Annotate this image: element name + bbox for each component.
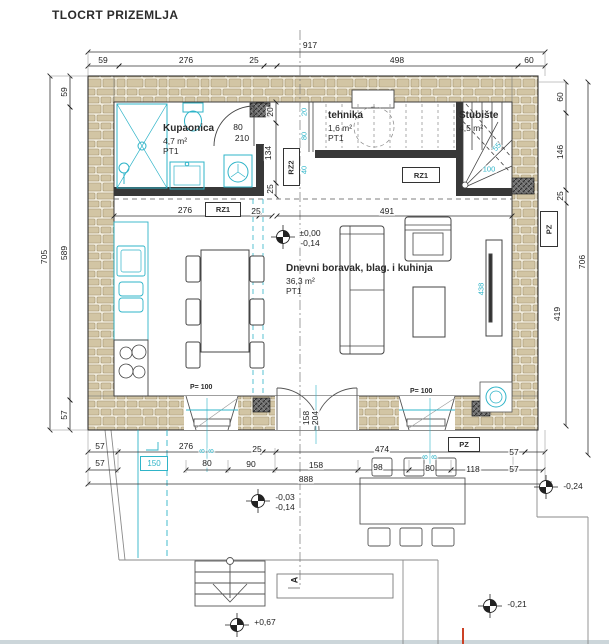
dimension-label: 474 bbox=[374, 445, 390, 454]
dimension-label: 8 bbox=[198, 448, 206, 454]
room-label-bathroom: Kupaonica 4,7 m² PT1 bbox=[163, 123, 214, 157]
room-floor: PT1 bbox=[286, 286, 433, 297]
dimension-label: 8 bbox=[430, 454, 438, 460]
dimension-label: 55 bbox=[491, 141, 503, 154]
elevation-label: +0,67 bbox=[253, 618, 277, 627]
annotation-layer: TLOCRT PRIZEMLJA Kupaonica 4,7 m² PT1 te… bbox=[0, 0, 609, 644]
dimension-label: 98 bbox=[372, 463, 383, 472]
dimension-label: 40 bbox=[300, 165, 308, 175]
dimension-label: 80 bbox=[424, 464, 435, 473]
dimension-label: 589 bbox=[60, 245, 69, 261]
dimension-label: 917 bbox=[302, 41, 318, 50]
room-area: 4,7 m² bbox=[163, 136, 214, 147]
beam-tag-rz2: RZ2 bbox=[283, 148, 300, 186]
dimension-label: 80 bbox=[201, 459, 212, 468]
dimension-label: 491 bbox=[379, 207, 395, 216]
dimension-label: 57 bbox=[60, 409, 69, 420]
dimension-label: 57 bbox=[94, 442, 105, 451]
dimension-label: 25 bbox=[266, 183, 275, 194]
dimension-label: 25 bbox=[251, 445, 262, 454]
elevation-label: -0,14 bbox=[299, 239, 320, 248]
dimension-label: 8 bbox=[207, 448, 215, 454]
dimension-label: 210 bbox=[234, 134, 250, 143]
tag-pz-bottom: PZ bbox=[448, 437, 480, 452]
window-tag-left: P= 100 bbox=[190, 384, 212, 391]
dimension-label: 57 bbox=[508, 448, 519, 457]
tag-pz-right: PZ bbox=[540, 211, 558, 247]
section-label-a: A bbox=[289, 577, 299, 584]
dimension-label: 25 bbox=[250, 207, 261, 216]
room-floor: PT1 bbox=[328, 133, 363, 144]
dimension-label: 59 bbox=[60, 86, 69, 97]
dimension-label: 90 bbox=[245, 460, 256, 469]
elevation-label: -0,21 bbox=[506, 600, 527, 609]
dimension-label: 100 bbox=[482, 165, 497, 173]
elevation-label: ±0,00 bbox=[298, 229, 321, 238]
floor-plan-page: TLOCRT PRIZEMLJA Kupaonica 4,7 m² PT1 te… bbox=[0, 0, 609, 644]
beam-tag-rz1b: RZ1 bbox=[402, 167, 440, 183]
elevation-label: -0,03 bbox=[274, 493, 295, 502]
elevation-label: -0,14 bbox=[274, 503, 295, 512]
dimension-label: 134 bbox=[264, 145, 273, 161]
dimension-label: 276 bbox=[177, 206, 193, 215]
dimension-label: 276 bbox=[178, 56, 194, 65]
dimension-label: 276 bbox=[178, 442, 194, 451]
room-name: Dnevni boravak, blag. i kuhinja bbox=[286, 263, 433, 276]
room-label-living: Dnevni boravak, blag. i kuhinja 36,3 m² … bbox=[286, 263, 433, 297]
dimension-label: 25 bbox=[556, 190, 565, 201]
dimension-label: 204 bbox=[311, 410, 320, 426]
dimension-label: 57 bbox=[94, 459, 105, 468]
room-area: 1,6 m² bbox=[328, 123, 363, 134]
dimension-label: 706 bbox=[578, 254, 587, 270]
room-name: tehnika bbox=[328, 110, 363, 123]
room-name: Kupaonica bbox=[163, 123, 214, 136]
room-name: Stubište bbox=[459, 110, 498, 123]
dimension-label: 438 bbox=[477, 282, 485, 297]
room-label-utility: tehnika 1,6 m² PT1 bbox=[328, 110, 363, 144]
dimension-label: 158 bbox=[308, 461, 324, 470]
drawing-title: TLOCRT PRIZEMLJA bbox=[52, 8, 178, 22]
dimension-label: 146 bbox=[556, 144, 565, 160]
dimension-label: 498 bbox=[389, 56, 405, 65]
room-area: 36,3 m² bbox=[286, 276, 433, 287]
dimension-label: 8 bbox=[421, 454, 429, 460]
dimension-label: 57 bbox=[508, 465, 519, 474]
dimension-label: 20 bbox=[300, 107, 308, 117]
dimension-label: 25 bbox=[248, 56, 259, 65]
dimension-label: 60 bbox=[556, 91, 565, 102]
tag-channel-150: 150 bbox=[140, 456, 168, 471]
room-area: 4,5 m² bbox=[459, 123, 498, 134]
room-floor: PT1 bbox=[163, 146, 214, 157]
dimension-label: 80 bbox=[232, 123, 243, 132]
dimension-label: 888 bbox=[298, 475, 314, 484]
dimension-label: 419 bbox=[553, 306, 562, 322]
dimension-label: 80 bbox=[300, 131, 308, 141]
window-tag-right: P= 100 bbox=[410, 388, 432, 395]
elevation-label: -0,24 bbox=[562, 482, 583, 491]
dimension-label: 20 bbox=[266, 106, 275, 117]
dimension-label: 60 bbox=[523, 56, 534, 65]
room-label-staircase: Stubište 4,5 m² bbox=[459, 110, 498, 133]
dimension-label: 705 bbox=[40, 249, 49, 265]
beam-tag-rz1: RZ1 bbox=[205, 202, 241, 217]
dimension-label: 118 bbox=[465, 465, 481, 474]
dimension-label: 59 bbox=[97, 56, 108, 65]
